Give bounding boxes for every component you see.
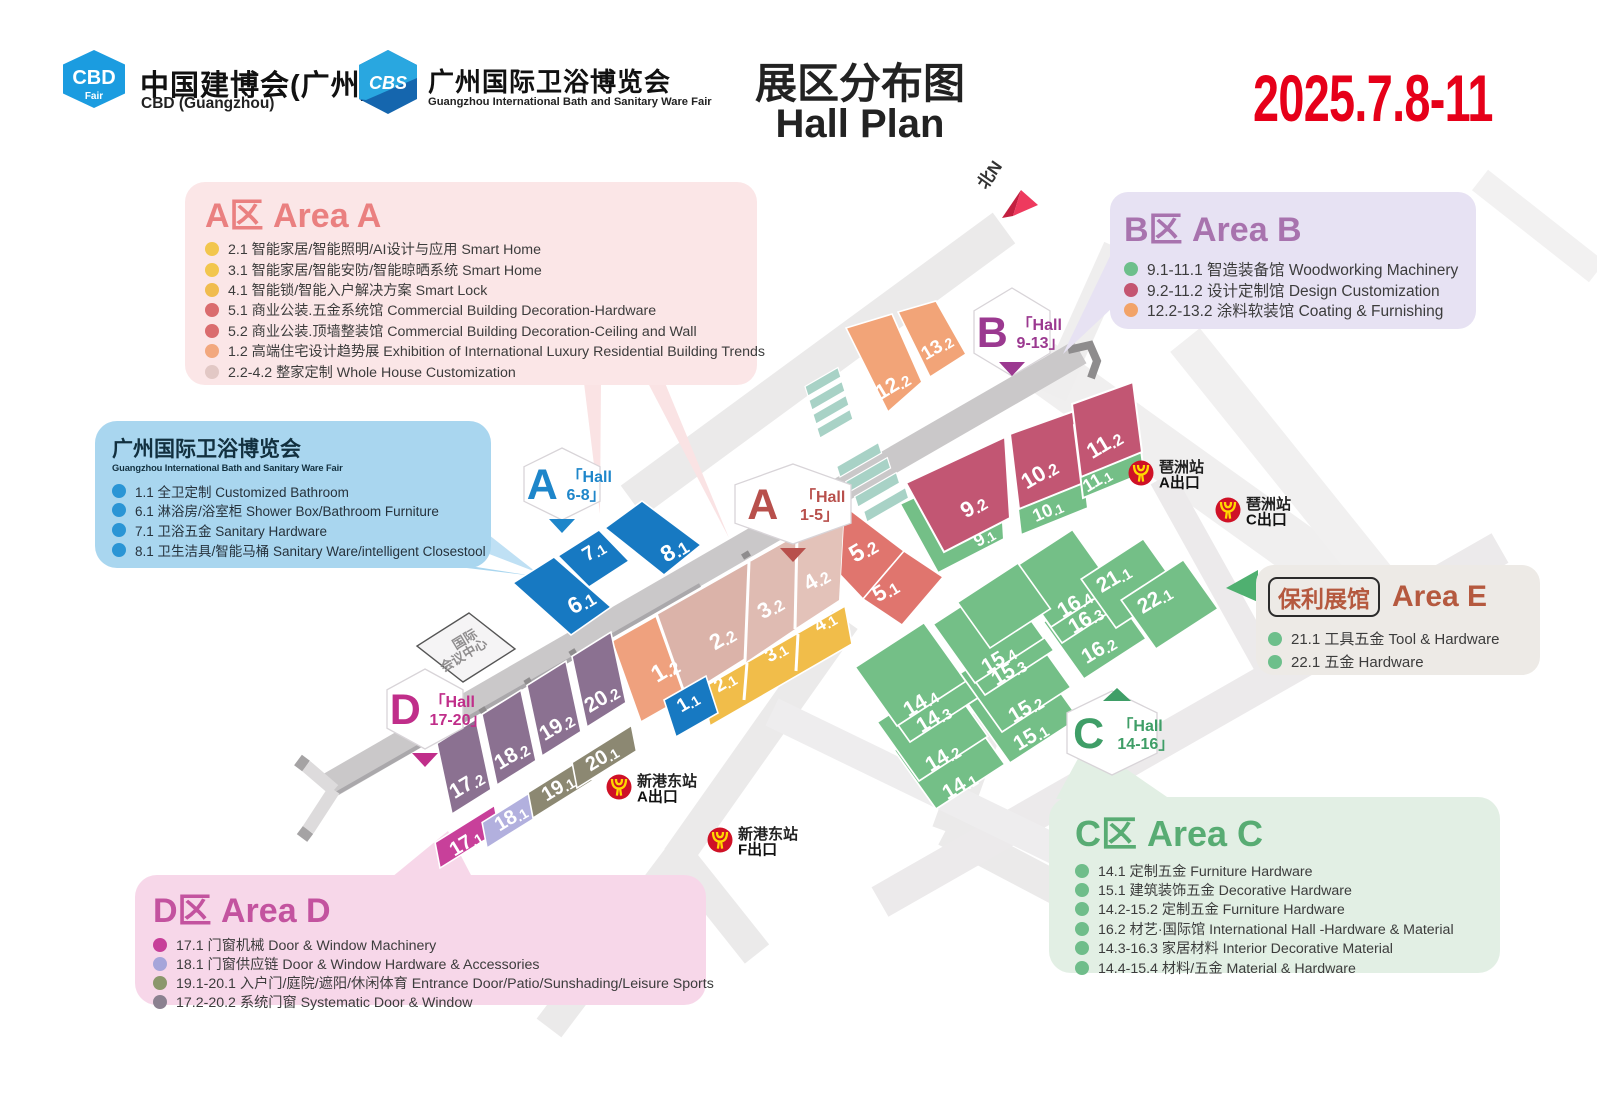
svg-text:新港东站: 新港东站 <box>637 772 697 790</box>
svg-text:「Hall: 「Hall <box>430 692 475 711</box>
svg-text:「Hall: 「Hall <box>567 467 612 486</box>
svg-text:C: C <box>1073 710 1104 758</box>
svg-text:琶洲站: 琶洲站 <box>1159 458 1204 476</box>
svg-text:B: B <box>977 309 1008 357</box>
svg-text:A出口: A出口 <box>1159 474 1200 492</box>
svg-text:F出口: F出口 <box>738 841 777 859</box>
svg-text:新港东站: 新港东站 <box>738 825 798 843</box>
svg-text:D: D <box>390 686 421 734</box>
svg-text:17-20」: 17-20」 <box>430 712 487 729</box>
svg-text:9-13」: 9-13」 <box>1017 335 1065 352</box>
svg-text:北N: 北N <box>974 157 1006 192</box>
svg-text:CBS: CBS <box>369 73 407 93</box>
svg-text:A: A <box>747 481 778 529</box>
svg-text:「Hall: 「Hall <box>1017 315 1062 334</box>
svg-text:A出口: A出口 <box>637 788 678 806</box>
svg-text:Fair: Fair <box>85 91 103 102</box>
svg-text:「Hall: 「Hall <box>800 487 845 506</box>
svg-text:CBD: CBD <box>72 67 115 89</box>
svg-text:1-5」: 1-5」 <box>800 507 839 524</box>
svg-text:A: A <box>527 461 558 509</box>
svg-text:琶洲站: 琶洲站 <box>1246 495 1291 513</box>
svg-text:6-8」: 6-8」 <box>567 487 606 504</box>
svg-text:14-16」: 14-16」 <box>1117 736 1174 753</box>
svg-text:C出口: C出口 <box>1246 511 1287 529</box>
svg-text:「Hall: 「Hall <box>1117 716 1162 735</box>
